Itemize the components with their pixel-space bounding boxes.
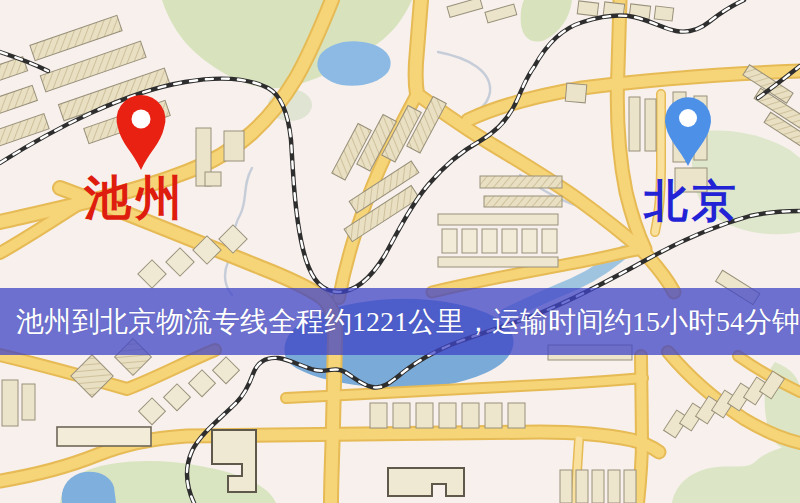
origin-pin-body — [116, 95, 165, 170]
route-info-banner: 池州到北京物流专线全程约1221公里，运输时间约15小时54分钟. — [0, 288, 800, 355]
origin-pin-icon — [116, 95, 165, 170]
map-canvas — [0, 0, 800, 503]
destination-city-label: 北京 — [644, 180, 740, 224]
route-info-text: 池州到北京物流专线全程约1221公里，运输时间约15小时54分钟. — [16, 303, 800, 341]
map-screenshot: 池州 北京 池州到北京物流专线全程约1221公里，运输时间约15小时54分钟. — [0, 0, 800, 503]
origin-city-label: 池州 — [84, 175, 186, 222]
